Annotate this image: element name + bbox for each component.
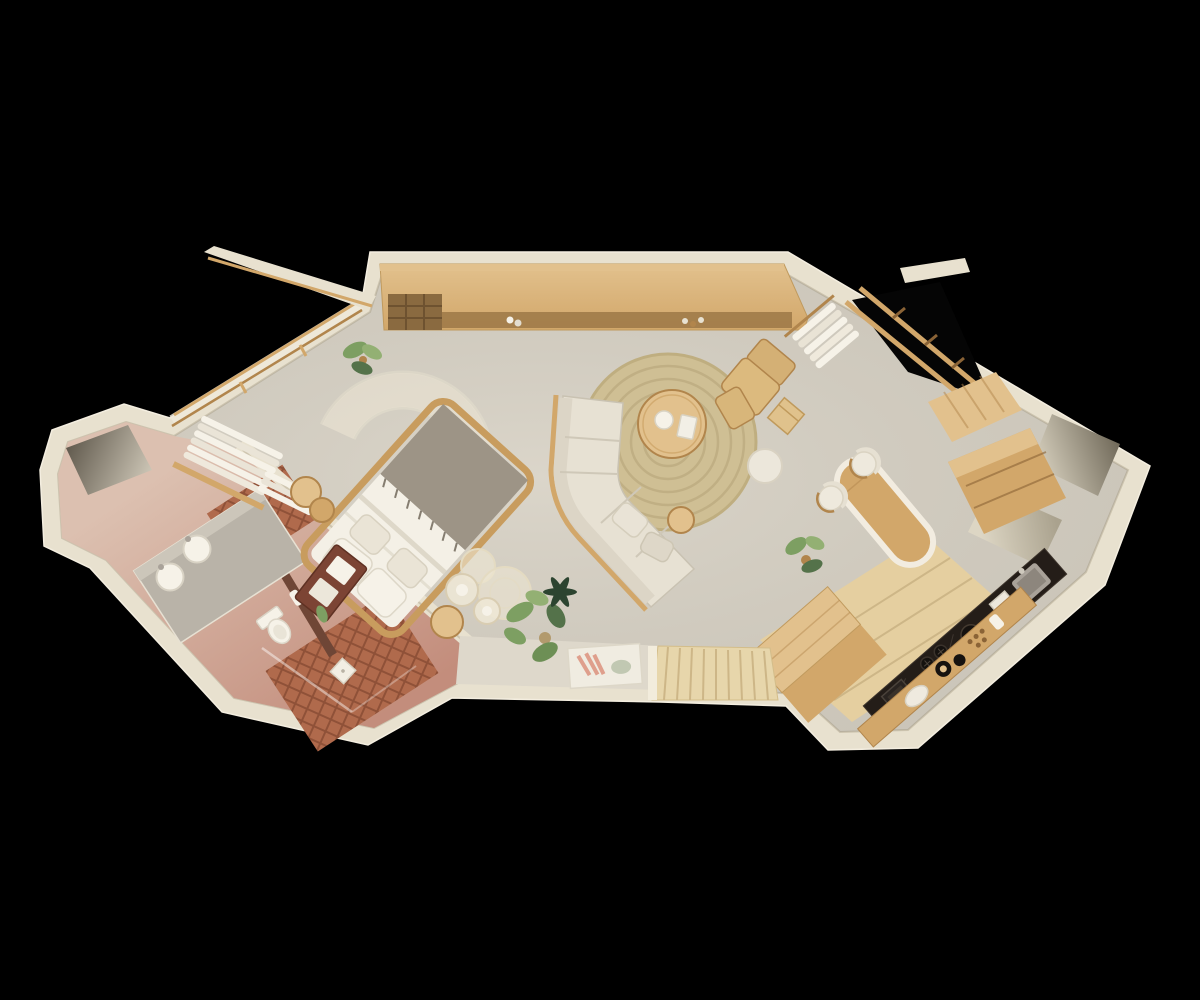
deck-curb (648, 646, 657, 700)
wine-rack (388, 294, 442, 330)
book (677, 415, 697, 440)
plant-pot (539, 632, 551, 644)
floorplan-canvas (0, 0, 1200, 1000)
floor-artwork (568, 644, 643, 689)
faucet (158, 564, 164, 570)
round-nightstand (431, 606, 463, 638)
round-coffee-table (638, 390, 706, 458)
console-open-shelf (392, 312, 792, 328)
round-side-table (668, 507, 694, 533)
white-pouf (748, 449, 782, 483)
wall-console-with-wine-rack (380, 264, 808, 330)
viewport (0, 0, 1200, 1000)
round-nightstand (310, 498, 334, 522)
console-top-edge (380, 264, 784, 271)
bowl (655, 411, 673, 429)
faucet (185, 536, 191, 542)
